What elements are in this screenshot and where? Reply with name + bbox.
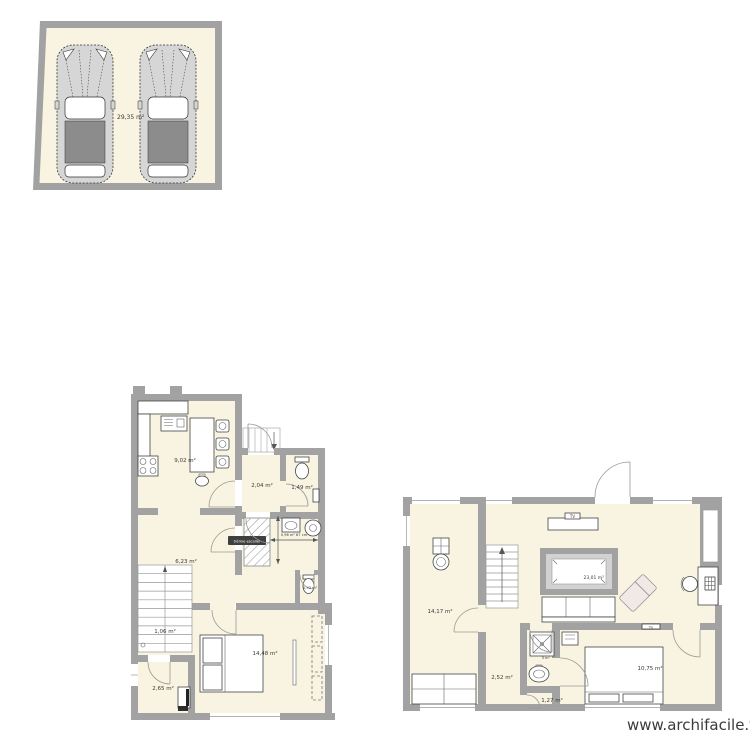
desk[interactable] [698, 567, 718, 605]
bar-stool-icon[interactable] [216, 420, 229, 432]
car-icon[interactable] [138, 45, 198, 183]
dimension-label: 0,96 m² 87 cm [281, 533, 308, 537]
bar-stool-icon[interactable] [216, 456, 229, 468]
closet-niche[interactable] [703, 510, 718, 562]
staircase[interactable] [138, 565, 192, 652]
area-label: 1,49 m² [291, 484, 313, 491]
entrance-door[interactable] [595, 462, 630, 497]
sofa[interactable] [542, 597, 615, 622]
area-label: 14,48 m² [252, 650, 277, 657]
hand-basin-icon[interactable] [313, 489, 319, 502]
first-floor-plan: TV 23,01 m² [400, 460, 725, 718]
area-label: 2,52 m² [491, 674, 513, 681]
window[interactable] [412, 497, 460, 504]
area-label: 1,06 m² [154, 628, 176, 635]
area-label: 9,02 m² [174, 457, 196, 464]
window[interactable] [403, 516, 410, 546]
area-label: 1,27 m² [541, 697, 563, 704]
dryer-icon[interactable] [433, 554, 449, 570]
sliding-door[interactable] [293, 640, 296, 685]
area-label: 14,17 m² [427, 608, 452, 615]
hall-floor[interactable] [486, 608, 520, 704]
kitchen-counter[interactable] [138, 401, 188, 414]
selected-measure-label[interactable]: trémie escalier [228, 536, 266, 545]
tv-label: TV [569, 514, 575, 519]
staircase[interactable] [486, 545, 518, 608]
window[interactable] [325, 625, 332, 665]
toilet-icon[interactable] [295, 457, 309, 479]
window[interactable] [131, 664, 138, 686]
garage-area-label: 29,35 m² [117, 114, 145, 121]
double-bed-icon[interactable] [200, 635, 263, 692]
washing-machine-icon[interactable] [433, 538, 449, 554]
billiard-table[interactable]: 23,01 m² [540, 548, 618, 595]
area-label: 10,75 m² [637, 665, 662, 672]
tv-label: Tv [648, 625, 653, 629]
area-label: 23,01 m² [583, 575, 604, 581]
bar-stool-icon[interactable] [216, 438, 229, 450]
hob-icon[interactable] [138, 456, 158, 476]
area-label: 0,93 m² [303, 586, 318, 590]
oven-icon[interactable] [161, 416, 187, 431]
area-label: 6,23 m² [175, 558, 197, 565]
bedside-cabinet[interactable] [562, 632, 578, 645]
area-label: 2,65 m² [152, 685, 174, 692]
archifacile-watermark: www.archifacile.fr [627, 716, 750, 734]
area-label: 3 m² [542, 656, 551, 660]
computer-icon [705, 577, 715, 590]
window[interactable] [653, 497, 692, 504]
window[interactable] [486, 497, 512, 504]
washbasin-icon[interactable] [282, 518, 300, 532]
garage-plan: 29,35 m² [30, 18, 225, 193]
shower-icon[interactable] [530, 632, 554, 656]
double-bed-icon[interactable] [585, 647, 663, 704]
tv-icon[interactable]: Tv [642, 624, 660, 629]
car-icon[interactable] [55, 45, 115, 183]
area-label: 2,04 m² [251, 482, 273, 489]
window[interactable] [585, 704, 660, 711]
window[interactable] [210, 713, 280, 720]
toilet-icon[interactable] [303, 575, 314, 594]
ground-floor-plan: 0,96 m² 87 cm trémie escalier [128, 386, 338, 722]
table[interactable] [412, 674, 476, 704]
water-heater-icon[interactable] [305, 520, 321, 536]
window[interactable] [420, 704, 475, 711]
hall-passage [235, 575, 242, 603]
storage-appliance[interactable] [178, 687, 190, 711]
svg-text:trémie escalier: trémie escalier [234, 540, 261, 544]
